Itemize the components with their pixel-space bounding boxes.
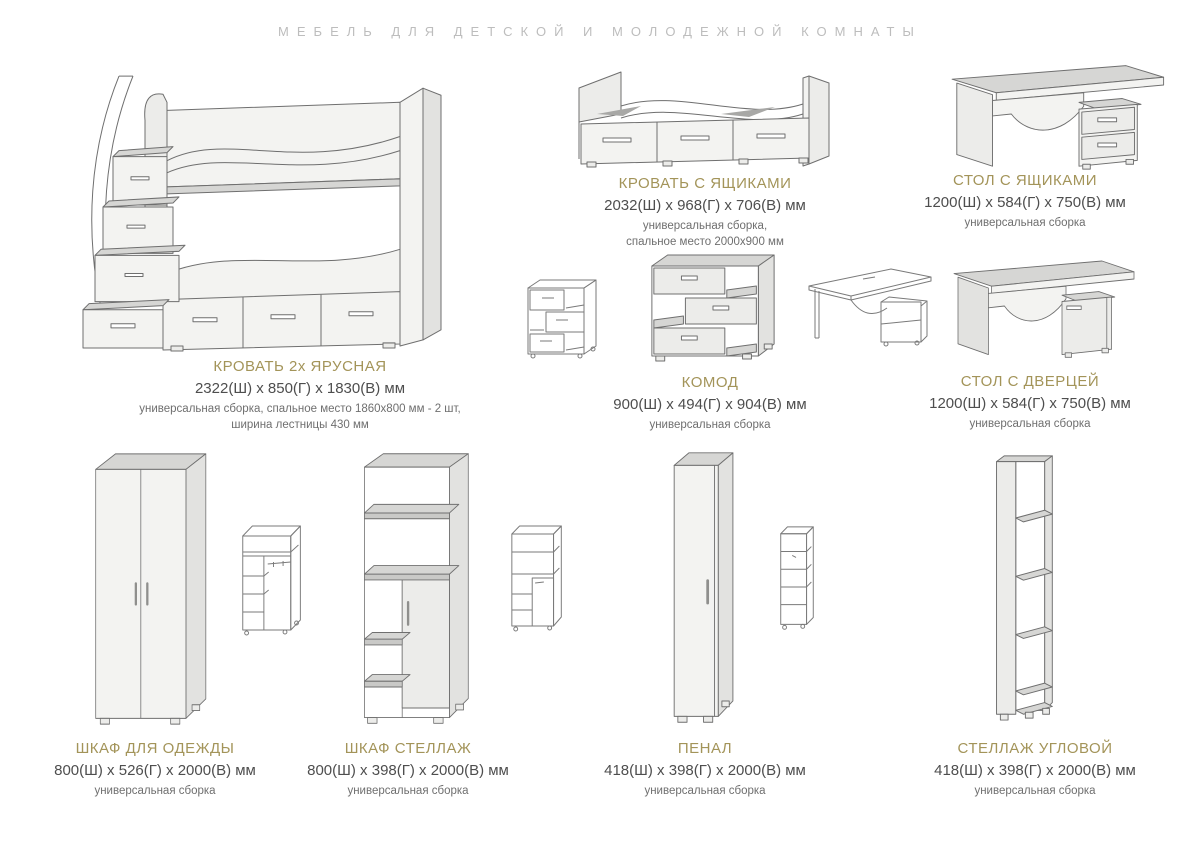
wardrobe-illustration [85, 448, 215, 730]
product-dimensions: 800(Ш) x 398(Г) x 2000(В) мм [283, 762, 533, 779]
shelf-wardrobe-illustration [355, 448, 473, 730]
product-note: универсальная сборка, [560, 219, 850, 235]
shelf-wardrobe-drawing [355, 448, 473, 730]
product-note: универсальная сборка [283, 784, 533, 800]
product-title: ШКАФ ДЛЯ ОДЕЖДЫ [30, 740, 280, 757]
bed-with-drawers-illustration [563, 62, 858, 172]
tall-cabinet-illustration [665, 448, 743, 728]
shelf-wardrobe-sketch-drawing [507, 518, 571, 648]
desk-with-drawers-label: СТОЛ С ЯЩИКАМИ 1200(Ш) x 584(Г) x 750(В)… [900, 172, 1150, 232]
product-dimensions: 2322(Ш) x 850(Г) x 1830(В) мм [70, 380, 530, 397]
shelf-wardrobe-sketch [507, 518, 571, 648]
chest-of-drawers-label: КОМОД 900(Ш) x 494(Г) x 904(В) мм универ… [590, 374, 830, 434]
wardrobe-label: ШКАФ ДЛЯ ОДЕЖДЫ 800(Ш) x 526(Г) x 2000(В… [30, 740, 280, 800]
product-dimensions: 418(Ш) x 398(Г) x 2000(В) мм [585, 762, 825, 779]
wardrobe-sketch-drawing [237, 518, 309, 651]
product-dimensions: 900(Ш) x 494(Г) x 904(В) мм [590, 396, 830, 413]
desk-with-door-illustration [942, 252, 1142, 360]
bunk-bed-label: КРОВАТЬ 2х ЯРУСНАЯ 2322(Ш) x 850(Г) x 18… [70, 358, 530, 433]
page-title: МЕБЕЛЬ ДЛЯ ДЕТСКОЙ И МОЛОДЕЖНОЙ КОМНАТЫ [0, 24, 1200, 39]
desk-with-door-label: СТОЛ С ДВЕРЦЕЙ 1200(Ш) x 584(Г) x 750(В)… [905, 373, 1155, 433]
corner-shelf-illustration [985, 450, 1060, 722]
bed-with-drawers-label: КРОВАТЬ С ЯЩИКАМИ 2032(Ш) x 968(Г) x 706… [560, 175, 850, 250]
bed-with-drawers-drawing [563, 62, 858, 172]
product-note: универсальная сборка [585, 784, 825, 800]
tall-cabinet-sketch-drawing [775, 520, 819, 648]
corner-shelf-drawing [985, 450, 1060, 722]
chest-of-drawers-sketch [518, 272, 602, 360]
product-dimensions: 2032(Ш) x 968(Г) x 706(В) мм [560, 197, 850, 214]
product-title: КРОВАТЬ С ЯЩИКАМИ [560, 175, 850, 192]
corner-shelf-label: СТЕЛЛАЖ УГЛОВОЙ 418(Ш) x 398(Г) x 2000(В… [910, 740, 1160, 800]
product-dimensions: 1200(Ш) x 584(Г) x 750(В) мм [905, 395, 1155, 412]
product-title: СТЕЛЛАЖ УГЛОВОЙ [910, 740, 1160, 757]
tall-cabinet-sketch [775, 520, 819, 648]
catalog-page: МЕБЕЛЬ ДЛЯ ДЕТСКОЙ И МОЛОДЕЖНОЙ КОМНАТЫ [0, 0, 1200, 857]
product-note: универсальная сборка, спальное место 186… [70, 402, 530, 418]
product-title: СТОЛ С ДВЕРЦЕЙ [905, 373, 1155, 390]
bunk-bed-illustration [55, 60, 475, 352]
product-dimensions: 1200(Ш) x 584(Г) x 750(В) мм [900, 194, 1150, 211]
product-title: ПЕНАЛ [585, 740, 825, 757]
chest-sketch-drawing [518, 272, 602, 360]
wardrobe-drawing [85, 448, 215, 730]
product-note: универсальная сборка [910, 784, 1160, 800]
chest-of-drawers-illustration [644, 250, 782, 362]
desk-with-door-drawing [942, 252, 1142, 360]
chest-of-drawers-drawing [644, 250, 782, 362]
desk-with-drawers-drawing [938, 56, 1173, 172]
product-dimensions: 418(Ш) x 398(Г) x 2000(В) мм [910, 762, 1160, 779]
product-note: универсальная сборка [900, 216, 1150, 232]
bunk-bed-drawing [55, 60, 475, 352]
product-dimensions: 800(Ш) x 526(Г) x 2000(В) мм [30, 762, 280, 779]
product-title: СТОЛ С ЯЩИКАМИ [900, 172, 1150, 189]
tall-cabinet-label: ПЕНАЛ 418(Ш) x 398(Г) x 2000(В) мм униве… [585, 740, 825, 800]
product-title: КОМОД [590, 374, 830, 391]
product-note: спальное место 2000х900 мм [560, 235, 850, 251]
desk-sketch [805, 262, 935, 350]
desk-sketch-drawing [805, 262, 935, 350]
product-note: универсальная сборка [30, 784, 280, 800]
product-note: универсальная сборка [590, 418, 830, 434]
product-note: ширина лестницы 430 мм [70, 418, 530, 434]
tall-cabinet-drawing [665, 448, 743, 728]
wardrobe-interior-sketch [237, 518, 309, 651]
shelf-wardrobe-label: ШКАФ СТЕЛЛАЖ 800(Ш) x 398(Г) x 2000(В) м… [283, 740, 533, 800]
product-title: ШКАФ СТЕЛЛАЖ [283, 740, 533, 757]
desk-with-drawers-illustration [938, 56, 1173, 172]
product-note: универсальная сборка [905, 417, 1155, 433]
product-title: КРОВАТЬ 2х ЯРУСНАЯ [70, 358, 530, 375]
